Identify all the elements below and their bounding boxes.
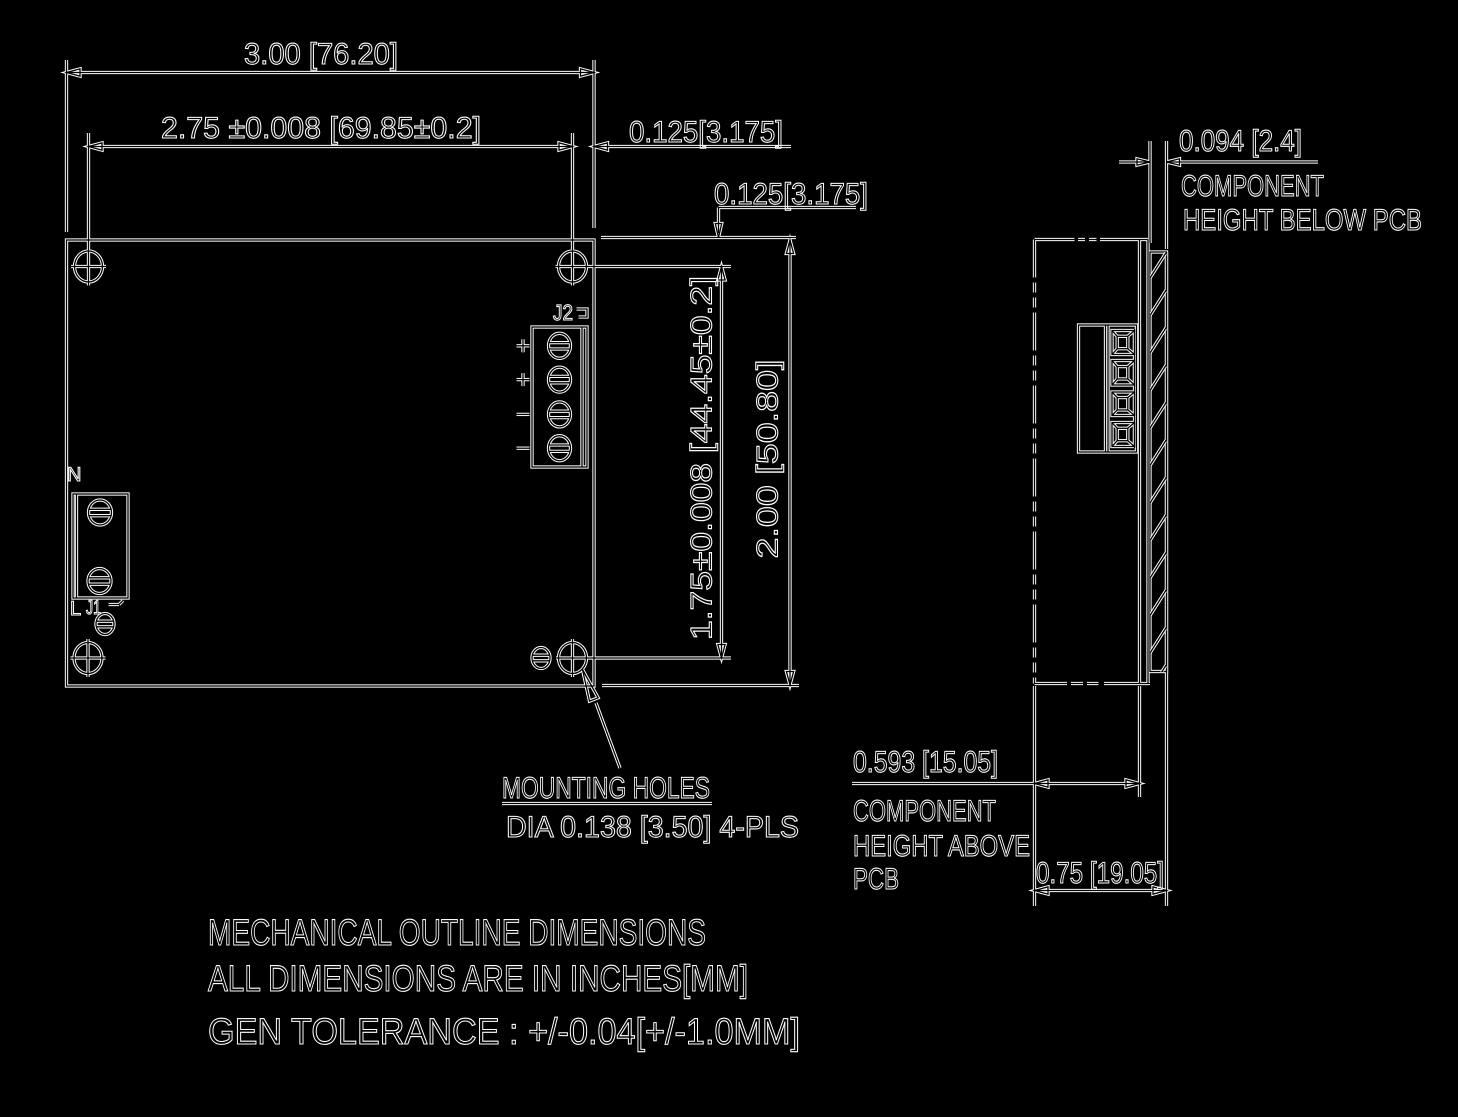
svg-text:HEIGHT ABOVE: HEIGHT ABOVE [853,830,1030,863]
svg-text:2.75 ±0.008 [69.85±0.2]: 2.75 ±0.008 [69.85±0.2] [161,112,481,145]
svg-text:HEIGHT BELOW PCB: HEIGHT BELOW PCB [1183,204,1422,237]
svg-text:0.125[3.175]: 0.125[3.175] [629,116,783,149]
svg-text:0.593 [15.05]: 0.593 [15.05] [853,746,998,779]
svg-text:L: L [70,598,81,620]
svg-text:J1: J1 [86,597,101,619]
svg-text:J2: J2 [553,300,573,325]
svg-text:0.125[3.175]: 0.125[3.175] [714,178,868,211]
svg-text:0.094 [2.4]: 0.094 [2.4] [1179,125,1302,158]
svg-text:MOUNTING HOLES: MOUNTING HOLES [502,772,710,805]
svg-text:ALL DIMENSIONS ARE IN INCH: ALL DIMENSIONS ARE IN INCHES[MM] [208,958,748,999]
svg-text:COMPONENT: COMPONENT [853,795,996,828]
svg-text:0.75 [19.05]: 0.75 [19.05] [1036,857,1164,890]
svg-text:DIA 0.138 [3.50] 4-PLS: DIA 0.138 [3.50] 4-PLS [506,811,799,844]
svg-text:N: N [67,464,81,486]
svg-text:1.75±0.008 [44.45±0.2]: 1.75±0.008 [44.45±0.2] [686,276,719,640]
svg-text:GEN TOLERANCE : +/-0.04[+/-: GEN TOLERANCE : +/-0.04[+/-1.0MM] [208,1011,800,1052]
svg-text:COMPONENT: COMPONENT [1181,170,1324,203]
svg-text:2.00 [50.80]: 2.00 [50.80] [752,360,785,559]
svg-text:PCB: PCB [853,863,899,896]
svg-text:3.00 [76.20]: 3.00 [76.20] [244,38,398,71]
svg-text:MECHANICAL OUTLINE DIMENSION: MECHANICAL OUTLINE DIMENSIONS [208,912,706,953]
